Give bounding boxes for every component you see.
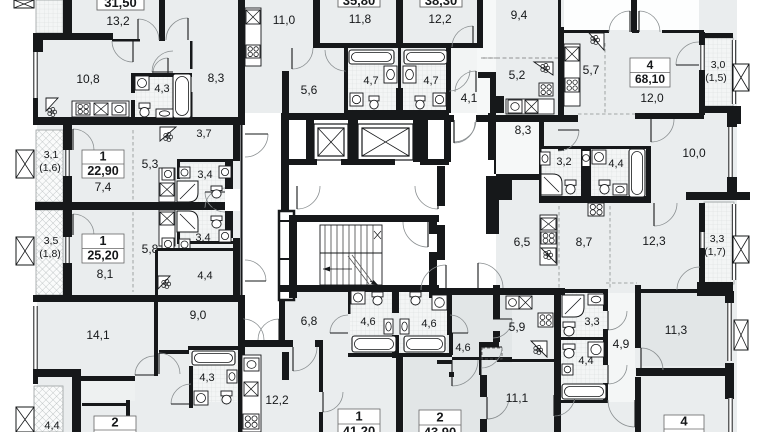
svg-text:12,2: 12,2 — [428, 12, 452, 26]
svg-text:11,8: 11,8 — [349, 12, 372, 26]
svg-text:5,2: 5,2 — [509, 68, 526, 82]
svg-text:10,8: 10,8 — [76, 72, 100, 86]
svg-text:4,1: 4,1 — [461, 91, 478, 105]
svg-text:3,4: 3,4 — [195, 232, 210, 244]
svg-text:6,5: 6,5 — [514, 235, 531, 249]
svg-text:6,8: 6,8 — [301, 314, 318, 328]
svg-text:4,4: 4,4 — [608, 158, 623, 170]
svg-text:43,90: 43,90 — [424, 425, 457, 432]
svg-text:8,3: 8,3 — [515, 123, 532, 137]
svg-text:3,3: 3,3 — [584, 316, 599, 328]
svg-text:8,1: 8,1 — [97, 267, 114, 281]
svg-text:12,0: 12,0 — [640, 91, 664, 105]
svg-text:(1,5): (1,5) — [705, 72, 727, 84]
svg-text:4,7: 4,7 — [363, 75, 378, 87]
svg-text:4: 4 — [680, 414, 688, 429]
svg-text:11,1: 11,1 — [506, 391, 529, 405]
svg-text:4,6: 4,6 — [455, 342, 470, 354]
svg-text:(1,7): (1,7) — [704, 246, 726, 258]
svg-text:8,7: 8,7 — [576, 235, 593, 249]
svg-text:1: 1 — [100, 150, 107, 164]
svg-text:22,90: 22,90 — [87, 164, 118, 178]
svg-text:3,1: 3,1 — [44, 149, 59, 161]
svg-text:5,3: 5,3 — [142, 157, 159, 171]
svg-text:38,30: 38,30 — [425, 0, 458, 8]
svg-text:9,0: 9,0 — [190, 308, 207, 322]
svg-text:3,3: 3,3 — [710, 233, 725, 245]
svg-text:4,4: 4,4 — [197, 270, 212, 282]
svg-text:14,1: 14,1 — [86, 328, 110, 342]
svg-text:4,4: 4,4 — [578, 355, 593, 367]
svg-text:5,6: 5,6 — [301, 83, 318, 97]
svg-text:68,10: 68,10 — [635, 72, 665, 86]
svg-text:9,4: 9,4 — [511, 8, 528, 22]
svg-text:8,3: 8,3 — [208, 71, 225, 85]
svg-text:4: 4 — [647, 58, 654, 72]
svg-text:25,20: 25,20 — [87, 249, 118, 263]
svg-text:10,0: 10,0 — [682, 146, 706, 160]
svg-text:13,2: 13,2 — [106, 14, 130, 28]
svg-text:1: 1 — [100, 234, 107, 248]
svg-text:31,50: 31,50 — [104, 0, 137, 10]
svg-text:(1,8): (1,8) — [39, 248, 61, 260]
svg-text:4,9: 4,9 — [613, 337, 630, 351]
svg-text:1: 1 — [355, 409, 362, 424]
svg-text:4,4: 4,4 — [44, 420, 59, 432]
svg-text:11,0: 11,0 — [273, 13, 296, 27]
svg-text:3,5: 3,5 — [44, 235, 59, 247]
svg-text:4,6: 4,6 — [421, 318, 436, 330]
svg-text:35,80: 35,80 — [343, 0, 376, 8]
svg-text:2: 2 — [436, 410, 443, 425]
svg-text:4,6: 4,6 — [360, 316, 375, 328]
svg-text:11,3: 11,3 — [665, 323, 688, 337]
svg-text:4,3: 4,3 — [199, 372, 214, 384]
svg-text:3,2: 3,2 — [556, 156, 571, 168]
svg-text:5,7: 5,7 — [583, 63, 600, 77]
svg-text:4,7: 4,7 — [423, 75, 438, 87]
svg-text:4,3: 4,3 — [154, 83, 169, 95]
svg-text:3,0: 3,0 — [711, 59, 726, 71]
svg-text:5,9: 5,9 — [509, 320, 526, 334]
svg-text:(1,6): (1,6) — [39, 162, 61, 174]
svg-text:7,4: 7,4 — [95, 180, 112, 194]
svg-text:3,7: 3,7 — [196, 128, 211, 140]
svg-text:12,3: 12,3 — [642, 234, 666, 248]
svg-text:2: 2 — [111, 415, 118, 430]
svg-text:12,2: 12,2 — [265, 393, 289, 407]
svg-text:41,20: 41,20 — [343, 424, 376, 432]
svg-text:3,4: 3,4 — [197, 169, 212, 181]
